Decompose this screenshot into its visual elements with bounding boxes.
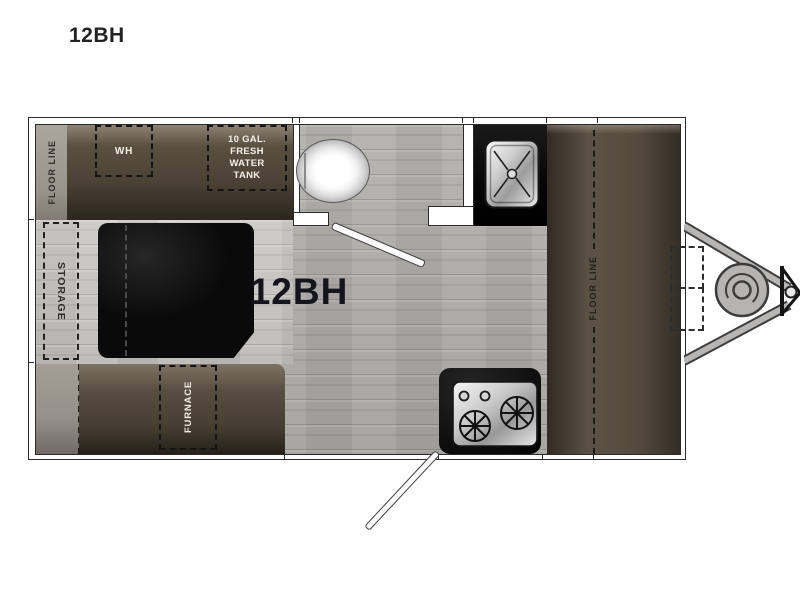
wall-tick (299, 118, 300, 123)
bench-floor-strip (36, 364, 79, 454)
fresh-water-tank-label: 10 GAL. FRESH WATER TANK (228, 134, 266, 182)
floor-line-right-dash-bottom (593, 327, 595, 454)
water-heater-label: WH (115, 146, 133, 157)
wardrobe-cabinet: FLOOR LINE (547, 125, 680, 454)
toilet-fixture (296, 139, 370, 203)
model-label: 12BH (224, 271, 374, 313)
wall-tick (593, 455, 594, 460)
floor-line-right-dash-top (593, 130, 595, 249)
bathroom-door-stub-right (428, 206, 474, 226)
sink-fixture (484, 139, 540, 209)
bathroom-door (331, 222, 426, 268)
burner-icon (501, 397, 533, 429)
sink-counter (474, 125, 547, 226)
toilet-tank-line (304, 153, 306, 189)
floor-line-right-label-box: FLOOR LINE (583, 249, 603, 327)
wall-tick (597, 118, 598, 123)
wall-tick (292, 118, 293, 123)
page-title: 12BH (69, 24, 125, 48)
entry-door (364, 450, 440, 531)
wall-tick (284, 455, 285, 460)
wall-tick (29, 219, 34, 220)
interior-floor: FLOOR LINE WH 10 GAL. FRESH WATER TANK (35, 124, 681, 455)
fresh-water-tank-box: 10 GAL. FRESH WATER TANK (207, 125, 287, 191)
wall-tick (462, 118, 463, 123)
stove-knob-icon (460, 392, 469, 401)
furnace-label: FURNACE (183, 381, 194, 433)
bathroom-door-stub-left (293, 212, 329, 226)
storage-label: STORAGE (55, 262, 67, 321)
front-counter: WH 10 GAL. FRESH WATER TANK (67, 125, 293, 220)
floor-line-right-label: FLOOR LINE (588, 256, 598, 321)
floorplan-page: 12BH FLOOR LINE WH 10 GAL. FRESH WATER T… (0, 0, 800, 600)
stove-knob-icon (481, 392, 490, 401)
furnace-box: FURNACE (159, 365, 217, 450)
trailer-tongue (684, 203, 800, 395)
propane-tank (716, 264, 768, 316)
burner-icon (460, 411, 490, 441)
trailer-outline: FLOOR LINE WH 10 GAL. FRESH WATER TANK (28, 117, 686, 460)
floor-line-left-label: FLOOR LINE (47, 140, 57, 205)
storage-box: STORAGE (43, 222, 79, 360)
floor-line-left-strip: FLOOR LINE (36, 125, 68, 220)
wall-tick (546, 118, 547, 123)
wall-tick (29, 362, 34, 363)
stove-fixture (439, 368, 541, 454)
table-fold-line (125, 225, 127, 356)
wall-tick (542, 455, 543, 460)
bench-seat: FURNACE (79, 364, 285, 454)
water-heater-box: WH (95, 125, 153, 177)
wall-tick (473, 118, 474, 123)
